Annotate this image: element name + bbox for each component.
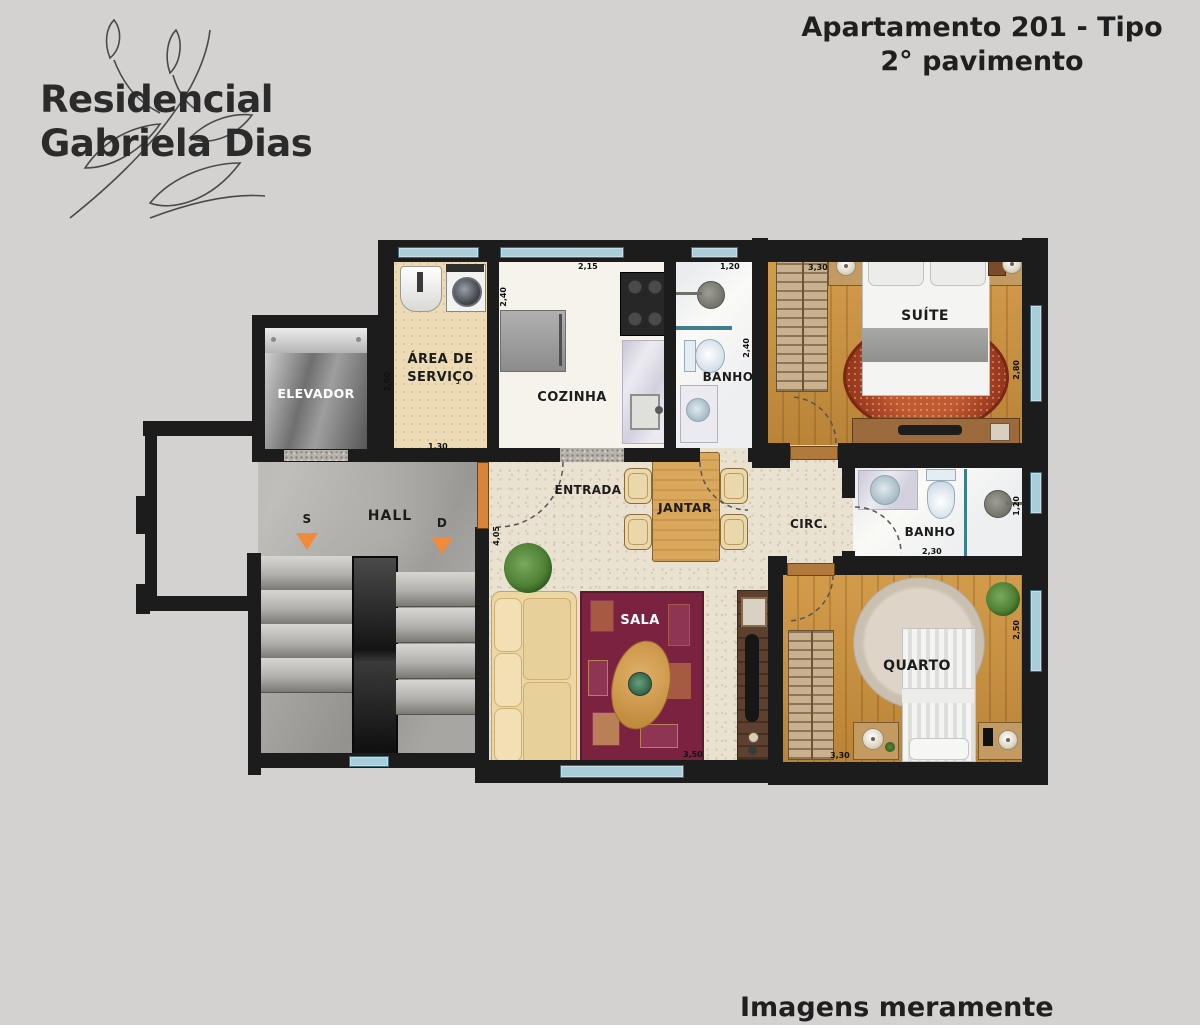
dining-chair: [720, 468, 748, 504]
dim-area-servico-height: 2,50: [383, 372, 392, 392]
stair-step: [396, 644, 487, 679]
wall: [842, 462, 855, 498]
stair-step: [261, 556, 352, 591]
stair-down-arrow: [431, 537, 453, 554]
window: [1030, 305, 1042, 402]
bath-sink: [686, 398, 710, 422]
dining-chair: [624, 468, 652, 504]
suite-dresser-item: [990, 423, 1010, 441]
wall: [475, 448, 489, 462]
suite-label: SUÍTE: [862, 308, 988, 324]
console-knob: [748, 732, 759, 743]
window: [1030, 472, 1042, 514]
bay-wall: [136, 496, 151, 534]
quarto-plant: [986, 582, 1020, 616]
sofa-seat-cushion: [523, 598, 571, 680]
wall: [378, 448, 560, 462]
dim-banho-2-height: 1,20: [1012, 496, 1021, 516]
bay-wall: [143, 596, 255, 611]
quarto-pillow: [909, 738, 969, 760]
quarto-lamp-right: [998, 730, 1018, 750]
coffee-table-bowl: [628, 672, 652, 696]
dim-quarto-width: 3,30: [830, 751, 850, 760]
dim-sala-width: 3,50: [683, 750, 703, 759]
wall: [752, 238, 768, 455]
laundry-sink-faucet: [417, 272, 423, 292]
stair-step: [396, 608, 487, 643]
floor-plan-page: Residencial Gabriela Dias Apartamento 20…: [0, 0, 1200, 1025]
quarto-plant-small: [885, 742, 895, 752]
circulacao-label: CIRC.: [778, 517, 840, 531]
bath2-sink: [870, 475, 900, 505]
sofa-back-cushion: [494, 708, 522, 762]
suite-door: [790, 446, 838, 460]
toilet-bowl: [927, 481, 955, 519]
hall-label: HALL: [358, 508, 422, 524]
bay-wall: [143, 421, 255, 436]
wall: [487, 240, 499, 450]
outer-wall-bottom: [768, 762, 1048, 785]
sofa-back-cushion: [494, 653, 522, 707]
stair-step: [261, 624, 352, 659]
suite-blanket: [862, 328, 988, 362]
dim-banho-social-width: 1,20: [720, 262, 740, 271]
entrada-plant: [504, 543, 552, 593]
window: [398, 247, 479, 258]
dining-chair: [624, 514, 652, 550]
dim-banho-social-height: 2,40: [742, 338, 751, 358]
dining-chair: [720, 514, 748, 550]
quarto-lamp-left: [862, 728, 884, 750]
wall: [768, 556, 783, 783]
fridge-handle: [559, 314, 562, 366]
wall: [378, 240, 394, 462]
window: [560, 765, 684, 778]
entrada-label: ENTRADA: [552, 483, 624, 497]
sofa-seat-cushion: [523, 682, 571, 764]
shower-partition: [676, 326, 732, 330]
logo-line-1: Residencial: [40, 78, 273, 121]
elevador-screw: [356, 337, 361, 342]
washing-machine-panel: [446, 264, 484, 272]
sala-rug-motif: [588, 660, 608, 696]
wall: [624, 448, 700, 462]
stair-up-label: S: [295, 512, 319, 526]
dim-suite-height: 2,80: [1012, 360, 1021, 380]
elevador-header-panel: [265, 328, 367, 354]
suite-tv: [898, 425, 962, 435]
banho-social-label: BANHO: [688, 370, 768, 384]
area-servico-label-1: ÁREA DE: [392, 352, 489, 367]
window: [500, 247, 624, 258]
dim-cozinha-height: 2,40: [499, 287, 508, 307]
window: [349, 756, 389, 767]
wall: [838, 443, 1022, 468]
dim-cozinha-width: 2,15: [578, 262, 598, 271]
shower-glass: [964, 469, 967, 557]
stairs-right-flight: [396, 572, 487, 754]
quarto-phone: [983, 728, 993, 746]
toilet-bowl: [695, 339, 725, 373]
wall: [833, 556, 1022, 575]
washing-machine-drum: [452, 277, 482, 307]
toilet-tank: [926, 469, 956, 481]
kitchen-sink-faucet: [655, 406, 663, 414]
area-servico-label-2: SERVIÇO: [392, 370, 489, 385]
quarto-door: [787, 563, 835, 576]
banho-2-label: BANHO: [890, 525, 970, 539]
shower-head: [697, 281, 725, 309]
picture-frame: [741, 597, 767, 627]
dim-banho-2-width: 2,30: [922, 547, 942, 556]
disclaimer-text: Imagens meramente ilustrativas: [740, 992, 1200, 1025]
wall: [475, 527, 489, 763]
console-knob: [748, 746, 757, 755]
logo-line-2: Gabriela Dias: [40, 122, 312, 165]
stair-step: [396, 680, 487, 715]
shower-arm: [676, 292, 702, 295]
jantar-label: JANTAR: [650, 500, 720, 515]
fridge: [500, 310, 566, 372]
stair-step: [261, 658, 352, 693]
stove: [620, 272, 668, 336]
stair-divider-wall: [352, 556, 398, 760]
dim-entrada-height: 4,05: [492, 526, 501, 546]
elevador-cab: [265, 353, 367, 449]
dim-area-servico-width: 1,30: [428, 442, 448, 451]
elevador-threshold: [284, 450, 348, 461]
cozinha-threshold: [560, 448, 624, 462]
plan-title-line-2: 2° pavimento: [772, 46, 1192, 77]
sala-rug-motif: [640, 724, 678, 748]
sofa-back-cushion: [494, 598, 522, 652]
dim-quarto-height: 2,50: [1012, 620, 1021, 640]
stair-step: [261, 590, 352, 625]
wall: [752, 443, 790, 468]
quarto-label: QUARTO: [872, 658, 962, 674]
plan-title-line-1: Apartamento 201 - Tipo: [772, 12, 1192, 43]
elevador-screw: [271, 337, 276, 342]
stairs-left-flight: [261, 556, 352, 754]
window: [691, 247, 738, 258]
cozinha-label: COZINHA: [497, 390, 647, 405]
stair-up-arrow: [296, 533, 318, 550]
quarto-wardrobe: [788, 630, 834, 760]
wall: [664, 240, 676, 455]
stair-step: [396, 572, 487, 607]
window: [1030, 590, 1042, 672]
dim-suite-width: 3,30: [808, 263, 828, 272]
entry-door: [477, 462, 489, 529]
hall-left-wall: [248, 553, 261, 775]
tv: [745, 634, 759, 722]
sala-label: SALA: [605, 613, 675, 628]
suite-wardrobe: [776, 252, 828, 392]
stair-down-label: D: [430, 516, 454, 530]
quarto-blanket-fold: [902, 688, 974, 703]
elevador-label: ELEVADOR: [265, 386, 367, 401]
